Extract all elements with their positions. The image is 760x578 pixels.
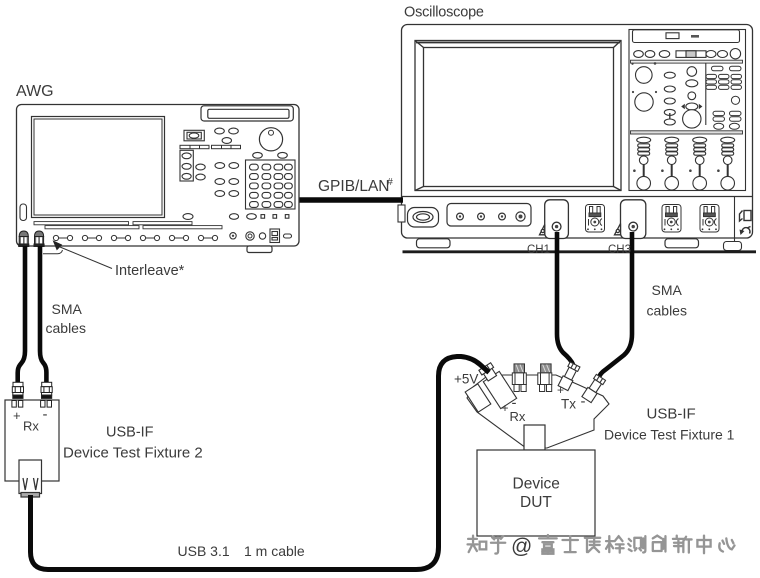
svg-text:CH3: CH3 [608,244,631,256]
svg-text:1 m cable: 1 m cable [244,543,305,559]
svg-text:Tx: Tx [561,397,576,412]
svg-text:CH1: CH1 [527,244,550,256]
svg-text:cables: cables [46,320,86,336]
svg-text:USB 3.1: USB 3.1 [178,543,230,559]
svg-text:#: # [387,176,393,188]
svg-text:@: @ [511,535,532,558]
svg-text:GPIB/LAN: GPIB/LAN [318,178,390,195]
svg-text:+: + [557,383,564,397]
svg-text:-: - [43,406,48,423]
svg-text:SMA: SMA [652,282,683,298]
svg-text:-: - [581,393,586,410]
svg-text:USB-IF: USB-IF [106,425,154,441]
svg-text:Device Test Fixture 1: Device Test Fixture 1 [604,427,735,443]
svg-text:+: + [502,401,509,415]
svg-text:USB-IF: USB-IF [647,406,696,423]
svg-text:cables: cables [647,303,687,319]
svg-text:Device: Device [513,476,560,493]
svg-text:AWG: AWG [16,83,54,100]
svg-text:Device Test Fixture 2: Device Test Fixture 2 [63,445,203,462]
svg-text:SMA: SMA [52,301,83,317]
svg-text:Interleave*: Interleave* [115,263,185,279]
svg-text:+: + [13,408,21,423]
svg-text:Rx: Rx [510,409,526,424]
svg-text:DUT: DUT [520,494,552,511]
svg-text:Oscilloscope: Oscilloscope [404,5,484,21]
svg-text:Rx: Rx [23,419,39,434]
svg-text:+5V: +5V [454,372,478,387]
